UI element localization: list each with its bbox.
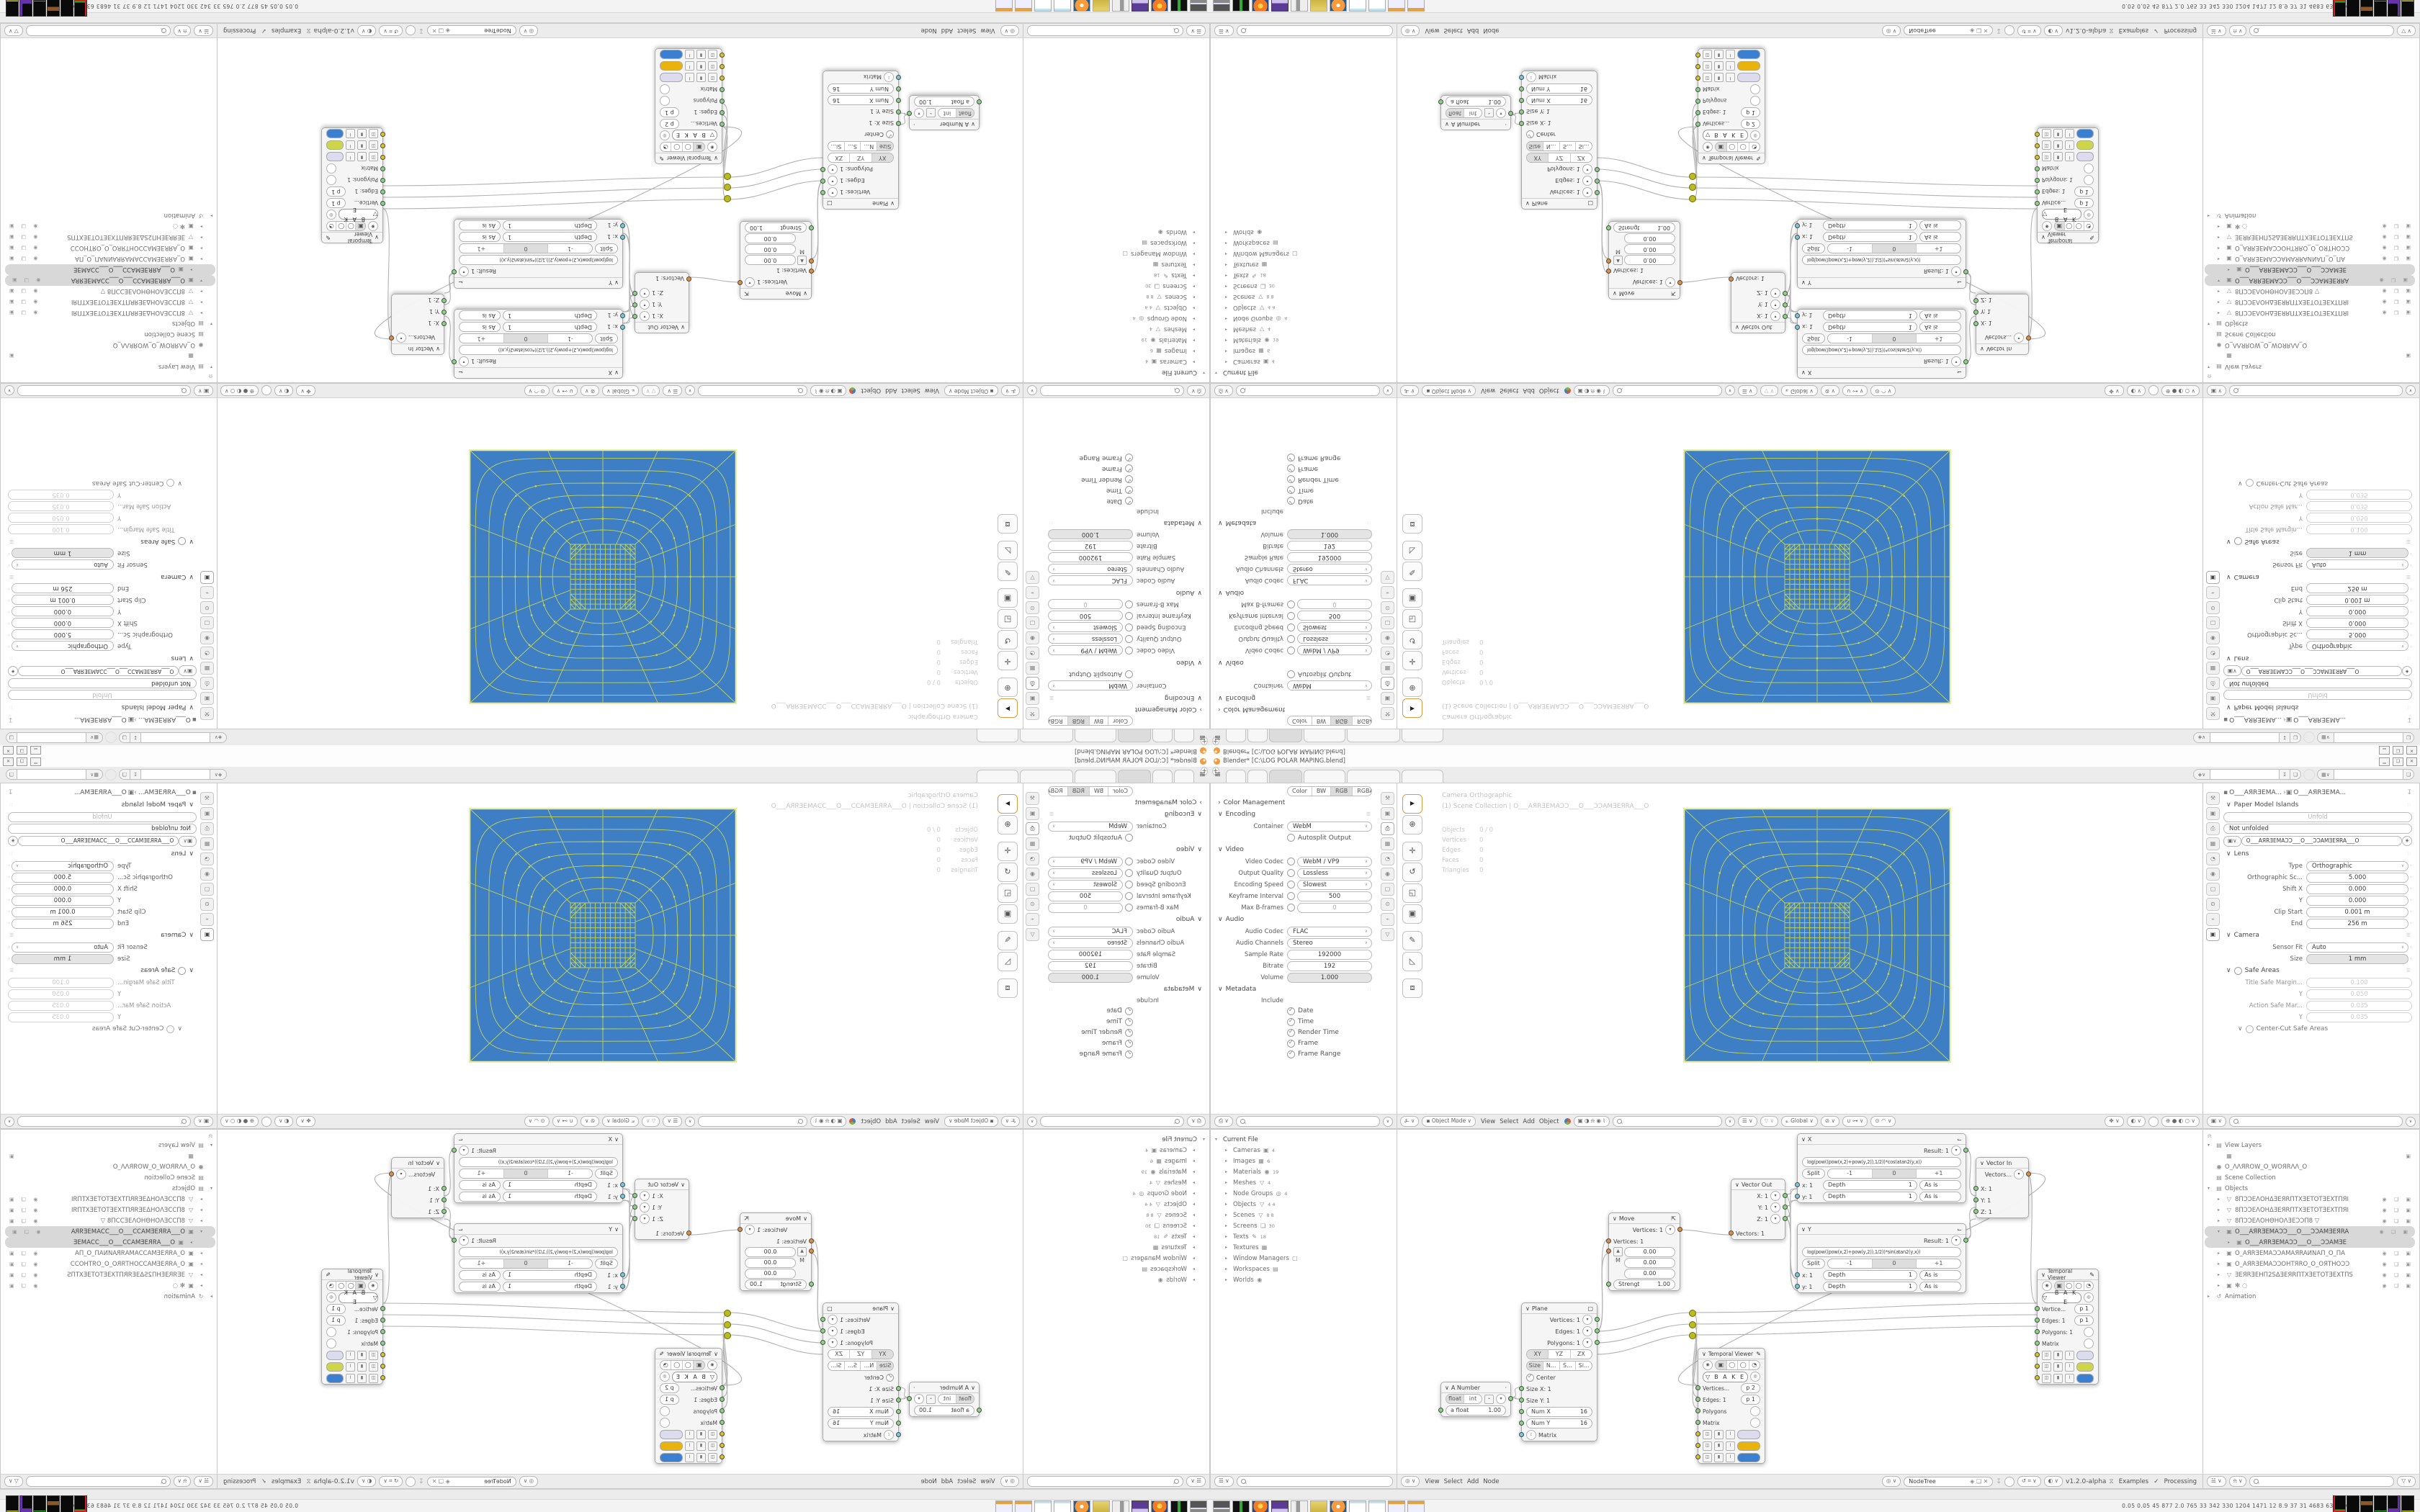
row-checkbox[interactable]	[1125, 881, 1133, 888]
row-value[interactable]: 0.000	[2306, 884, 2408, 894]
file-category-row[interactable]: ▸ Materials ◉ 19	[1025, 335, 1208, 346]
file-category-row[interactable]: ▸ Worlds ◉	[1025, 227, 1208, 238]
vector-component[interactable]: 0.00	[1624, 255, 1675, 265]
autosplit-checkbox[interactable]	[1125, 834, 1133, 842]
object-picker-icon[interactable]: ◈∨	[210, 769, 227, 780]
id-input-b[interactable]	[17, 732, 86, 743]
window-thumbnail[interactable]	[2388, 1495, 2401, 1512]
safe-areas-checkbox[interactable]	[178, 538, 186, 546]
breadcrumb-object[interactable]: O___AЯRƎEMA...	[2228, 716, 2283, 723]
outliner-row[interactable]: ▤ Scene Collection	[2205, 1172, 2418, 1183]
row-value[interactable]: 256 m	[2306, 919, 2408, 929]
tab-constraints-icon[interactable]: ⌁	[1026, 913, 1039, 926]
file-category-row[interactable]: ▸ Materials ◉ 19	[1212, 335, 1395, 346]
notepad[interactable]	[1349, 0, 1366, 12]
orientation-select[interactable]: ⟀ Global ∨	[1781, 1116, 1818, 1127]
file-category-row[interactable]: ▸ Texts ✎ 18	[1212, 270, 1395, 281]
editor-type-button[interactable]: ⎙ ∨	[1214, 385, 1233, 396]
search-input[interactable]	[1237, 25, 1393, 36]
split-button[interactable]: Split	[595, 1259, 618, 1269]
color-mode-option[interactable]: Color	[1288, 787, 1312, 796]
row-value[interactable]: Orthographic	[12, 642, 114, 652]
outliner-row[interactable]: ▸ ▽ 8ПƆƆEΛOHΔƎEЯRПTXƎETOTƎEXTПЯI ◉ ❏ ▣	[2, 1205, 215, 1215]
split-option[interactable]: 0	[1873, 1259, 1917, 1268]
fake-user-shield-icon[interactable]: ◈	[8, 666, 18, 676]
options-dropdown[interactable]: ∨	[1027, 386, 1037, 396]
formula-field[interactable]: log(pow((pow(x,2)+pow(y,2)),1/2))*sin(at…	[1802, 255, 1961, 265]
vector-component[interactable]: 0.00	[745, 244, 796, 254]
tab[interactable]	[1402, 729, 1443, 742]
file-category-row[interactable]: ▸ Objects ▽ 4 4	[1025, 302, 1208, 313]
orientation-select[interactable]: ⟀ Global ∨	[602, 1116, 639, 1127]
select-tool[interactable]: ▶	[1402, 698, 1422, 718]
rotate-tool[interactable]: ↺	[998, 863, 1018, 882]
calculator[interactable]	[1388, 1500, 1405, 1512]
bake-button[interactable]: ▽B A K E	[2042, 210, 2081, 220]
panel-video[interactable]: ∨Video	[1045, 657, 1205, 668]
row-value[interactable]: 500	[1297, 891, 1372, 901]
color-swatch[interactable]	[2076, 141, 2094, 150]
object-visibility-toggles[interactable]: ▣ ◑ ⍾ ◉ ⌇	[1574, 385, 1610, 396]
color-swatch[interactable]	[1737, 50, 1760, 60]
node-temporal-viewer-2[interactable]: ∨Temporal Viewer✎ ◉ ▣◯◯◔ ▽B A K E◎ Verti…	[655, 48, 722, 164]
menu-item[interactable]: Add	[939, 27, 955, 35]
color-mode-option[interactable]: RGBA	[1048, 717, 1067, 726]
split-button[interactable]: Split	[595, 243, 618, 253]
color-mode-option[interactable]: BW	[1089, 787, 1108, 796]
row-value[interactable]: 192000	[1287, 553, 1372, 563]
row-checkbox[interactable]	[1287, 869, 1295, 877]
metadata-checkbox[interactable]	[1125, 476, 1133, 484]
row-value[interactable]: 0.035	[2306, 1001, 2412, 1011]
split-option[interactable]: 0	[503, 334, 548, 343]
close-button[interactable]: ✕	[2406, 757, 2417, 766]
monitor[interactable]	[1190, 0, 1207, 12]
file-category-row[interactable]: ▸ Workspaces ▤	[1025, 238, 1208, 248]
color-mode-option[interactable]: RGBA	[1353, 717, 1372, 726]
panel-safe-areas[interactable]: ∨ Safe Areas☰	[5, 965, 197, 976]
search-input[interactable]	[2229, 385, 2403, 396]
editor-type-button[interactable]: ◎ ∨	[1401, 1476, 1420, 1487]
file-category-row[interactable]: ▸ Worlds ◉	[1212, 1274, 1395, 1285]
panel-audio[interactable]: ∨Audio	[1215, 587, 1375, 598]
xray-toggle[interactable]	[2148, 386, 2159, 396]
copy-icon[interactable]: ❏	[119, 769, 130, 780]
safe-areas-checkbox[interactable]	[2234, 967, 2242, 975]
tab[interactable]	[1226, 729, 1246, 742]
camera-data-name[interactable]: O___AЯRƎEMAƆƆ___O___ƆƆAMƎEЯRA___O	[18, 666, 179, 676]
search-input[interactable]	[1236, 1116, 1380, 1127]
tab-tool-icon[interactable]: ⚒	[1026, 707, 1039, 720]
panel-audio[interactable]: ∨Audio	[1045, 914, 1205, 925]
tab-viewlayer-icon[interactable]: ▦	[1026, 837, 1039, 850]
tab-output-icon[interactable]: ⎙	[1381, 677, 1394, 690]
window-thumbnail[interactable]	[47, 1495, 60, 1512]
viewport-3d[interactable]: ▶ ⊕ ✛ ↺ ◱ ▣ ✎ ◺ ⧈ Camera Orthographic (1…	[1397, 783, 2203, 1129]
file-category-row[interactable]: ▸ Images ▦ 6	[1212, 346, 1395, 356]
number-type-option[interactable]: int	[1464, 1395, 1482, 1403]
tab-physics-icon[interactable]: ⊙	[1381, 898, 1394, 911]
camera-data-name[interactable]: O___AЯRƎEMAƆƆ___O___ƆƆAMƎEЯRA___O	[2241, 836, 2402, 846]
menu-icon[interactable]: ≡	[1199, 770, 1206, 779]
window-thumbnail[interactable]	[2374, 1495, 2387, 1512]
pivot-select[interactable]: ⊘ ∨	[581, 1116, 599, 1127]
menu-item[interactable]: Object	[859, 387, 883, 395]
number-type-option[interactable]: int	[938, 109, 956, 117]
window-thumbnail[interactable]	[2401, 0, 2414, 17]
vector-component[interactable]: 0.00	[1624, 1247, 1675, 1257]
menu-item[interactable]: Object	[1537, 387, 1561, 395]
outliner-row[interactable]: ▦ ▣	[2205, 351, 2418, 361]
file-root-row[interactable]: ▾ Current File	[1212, 367, 1395, 378]
row-value[interactable]: 256 m	[2306, 584, 2408, 594]
panel-encoding[interactable]: ∨Encoding ☰	[1045, 809, 1205, 820]
node-plane[interactable]: ∨Plane▢ Vertices: 1▾Edges: 1▾Polygons: 1…	[823, 71, 899, 210]
formula-field[interactable]: log(pow((pow(x,2)+pow(y,2)),1/2))*sin(at…	[459, 255, 618, 265]
tab-tool-icon[interactable]: ⚒	[2206, 707, 2220, 720]
row-value[interactable]: Auto	[12, 942, 114, 953]
split-button[interactable]: Split	[1802, 1169, 1825, 1179]
tab-tool-icon[interactable]: ⚒	[1026, 792, 1039, 805]
file-category-row[interactable]: ▸ Objects ▽ 4 4	[1212, 302, 1395, 313]
menu-icon[interactable]: ≡	[1214, 770, 1221, 779]
tab-physics-icon[interactable]: ⊙	[1026, 601, 1039, 614]
move-tool[interactable]: ✛	[1402, 842, 1422, 861]
proportional-edit-toggle[interactable]: ⊙ ◠ ∨	[524, 385, 550, 396]
calculator[interactable]	[1015, 0, 1032, 12]
node-move[interactable]: ∨Move⇱ Vertices: 1▾ Vertices: 1 ▲ M 0.00…	[740, 221, 812, 300]
tab-constraints-icon[interactable]: ⌁	[2206, 586, 2220, 599]
file-category-row[interactable]: ▸ Cameras ▣ 4	[1212, 356, 1395, 367]
editor-type-button[interactable]: ▣ ∨	[194, 385, 213, 396]
unfold-button[interactable]: Unfold	[8, 812, 197, 822]
id-selector-b[interactable]: ▦∨ ❏	[2317, 732, 2414, 743]
row-checkbox[interactable]	[1287, 647, 1295, 654]
color-swatch[interactable]	[326, 130, 344, 139]
search-input[interactable]	[17, 1116, 191, 1127]
row-checkbox[interactable]	[1287, 881, 1295, 888]
tree-type-button[interactable]: ◎ ∨	[519, 1476, 538, 1487]
tab-render-icon[interactable]: ▣	[1026, 692, 1039, 705]
row-value[interactable]: 0.000	[12, 896, 114, 906]
metadata-checkbox[interactable]	[1125, 454, 1133, 462]
node-temporal-viewer-2[interactable]: ∨Temporal Viewer✎ ◉ ▣◯◯◔ ▽B A K E◎ Verti…	[1698, 1348, 1765, 1464]
tab-world-icon[interactable]: ◉	[2206, 631, 2220, 644]
gizmo-toggle[interactable]: ✥ ∨	[296, 1116, 315, 1127]
split-option[interactable]: -1	[1828, 1259, 1873, 1268]
window-thumbnail[interactable]	[33, 1495, 46, 1512]
monitor[interactable]	[1190, 1500, 1207, 1512]
row-value[interactable]: Orthographic	[12, 861, 114, 871]
plane-axis-option[interactable]: YZ	[1549, 1350, 1570, 1359]
tab-render-icon[interactable]: ▣	[2206, 692, 2220, 705]
outliner-row[interactable]: ◉ O_ΛΛЯROW_O_WOЯRΛΛ_O	[2205, 1161, 2418, 1172]
vector-component[interactable]: 0.00	[745, 1258, 796, 1268]
tab-world-icon[interactable]: ◉	[1381, 868, 1394, 881]
tab[interactable]	[1174, 729, 1194, 742]
row-value[interactable]: WebM / VP9	[1297, 646, 1372, 656]
breadcrumb-data[interactable]: O___AЯRƎEMA...	[2292, 789, 2347, 796]
xray-toggle[interactable]	[2148, 1117, 2159, 1127]
row-value[interactable]: Slowest	[1048, 623, 1123, 633]
ghost-toggle[interactable]	[2004, 26, 2015, 36]
outliner-row[interactable]: ▸ ▣ O_AЯRƎEMAƆƆAMAЯRAИNAП_O_ПA ◉ ❏ ▣	[2205, 253, 2418, 264]
outliner-row[interactable]: ▸ ▽ 8ПƆƆEΛOHΔƎEЯRПTXƎETOTƎEXTПЯI ◉ ❏ ▣	[2205, 307, 2418, 318]
center-checkbox[interactable]	[886, 131, 894, 139]
file-category-row[interactable]: ▸ Screens ❏ 30	[1025, 281, 1208, 292]
window-thumbnail[interactable]	[2333, 1495, 2346, 1512]
plane-size-option[interactable]: Size	[877, 1362, 893, 1370]
notepad[interactable]	[1368, 0, 1386, 12]
pin-icon[interactable]: ↧	[1996, 27, 2002, 35]
plane-axis-option[interactable]: XY	[871, 153, 893, 162]
panel-paper-model[interactable]: ∨Paper Model Islands ∷	[2223, 799, 2415, 811]
tab-object-icon[interactable]: ▢	[200, 883, 214, 896]
plane-axis-option[interactable]: XY	[1527, 1350, 1549, 1359]
editor-type-button[interactable]: ▣ ∨	[2207, 385, 2226, 396]
row-checkbox[interactable]	[1287, 858, 1295, 865]
annotate-tool[interactable]: ✎	[1402, 562, 1422, 581]
row-value[interactable]: 192000	[1287, 950, 1372, 960]
color-mode-option[interactable]: BW	[1312, 787, 1331, 796]
outliner-row[interactable]: ▸ ▽ ƎEЯRƎEHП2SΔƎEЯRПTXƎETOTƎEXTПS ◉ ❏ ▣	[2, 1269, 215, 1280]
file-category-row[interactable]: ▸ Cameras ▣ 4	[1025, 356, 1208, 367]
window-thumbnail[interactable]	[2347, 0, 2359, 17]
bake-button[interactable]: ▽B A K E	[339, 210, 378, 220]
viewport-3d[interactable]: ▶ ⊕ ✛ ↺ ◱ ▣ ✎ ◺ ⧈ Camera Orthographic (1…	[217, 783, 1023, 1129]
panel-paper-model[interactable]: ∨Paper Model Islands ∷	[5, 799, 197, 811]
row-value[interactable]: 1.000	[1048, 530, 1133, 540]
search-input[interactable]	[1236, 385, 1380, 396]
window-thumbnail[interactable]	[19, 0, 32, 17]
node-vector-in[interactable]: ∨Vector In Vectors...▾ X: 1Y: 1Z: 1	[1976, 1157, 2029, 1218]
file-category-row[interactable]: ▸ Worlds ◉	[1212, 227, 1395, 238]
shading-modes[interactable]: ⊕ ● ◐ ○ ∨	[220, 1116, 259, 1127]
panel-video[interactable]: ∨Video	[1215, 844, 1375, 855]
tab-data-icon[interactable]: ▽	[1026, 571, 1039, 584]
panel-encoding[interactable]: ∨Encoding ☰	[1215, 809, 1375, 820]
copy-icon[interactable]: ❏	[2290, 769, 2301, 780]
plane-axis-option[interactable]: XY	[871, 1350, 893, 1359]
color-mode-option[interactable]: RGBA	[1048, 787, 1067, 796]
fake-user-shield-icon[interactable]: ◈	[8, 836, 18, 846]
row-value[interactable]: Slowest	[1297, 623, 1372, 633]
row-value[interactable]: 0.000	[2306, 896, 2408, 906]
overlay-group[interactable]: ◐ ∨	[357, 1476, 376, 1487]
row-value[interactable]: 0.000	[12, 607, 114, 617]
id-selector-a[interactable]: ◈∨ ↧ ❏	[119, 732, 227, 743]
node-editor[interactable]: ∨A Number· floatint ⌁▾ a float1.00 ∨Plan…	[1397, 1129, 2203, 1489]
outliner-row[interactable]: ▦ ▣	[2, 1151, 215, 1161]
file-root-row[interactable]: ▾ Current File	[1212, 1134, 1395, 1145]
node-expression-x[interactable]: ∨X⌙ Result: 1▾ log(pow((pow(x,2)+pow(y,2…	[1797, 1133, 1966, 1203]
node-temporal-viewer-1[interactable]: ∨Temporal Viewer✎ ◉ ▣◯◯◔ ▽B A K E◎ Verti…	[2037, 127, 2099, 243]
search-dropdown[interactable]: ∨	[1725, 1117, 1735, 1127]
metadata-checkbox[interactable]	[1125, 1029, 1133, 1037]
minimize-button[interactable]: ▁	[2379, 757, 2390, 766]
plane-axis-option[interactable]: YZ	[1549, 153, 1570, 162]
plane-size-option[interactable]: S...	[844, 1362, 861, 1370]
window-thumbnail[interactable]	[60, 1495, 73, 1512]
outliner-row[interactable]: ▸ ▽ 8ПƆƆEΛOHΔƎEЯRПTXƎETOTƎEXTПЯI ◉ ❏ ▣	[2, 307, 215, 318]
row-value[interactable]: 0	[1297, 903, 1372, 913]
pin-icon[interactable]: ↧	[8, 716, 14, 723]
window-thumbnail[interactable]	[2333, 0, 2346, 17]
outliner-row[interactable]: ▾ ▣ O___AЯRƎEMAƆƆ___O___ƆƆAMƎEЯRA ◉ ❏ ▣	[5, 1226, 215, 1237]
split-option[interactable]: +1	[460, 1259, 503, 1268]
file-category-row[interactable]: ▸ Textures ▦	[1025, 259, 1208, 270]
outliner-row[interactable]: ▸ ▣ ✻ ◌ ◉ ❏ ▣	[2, 1280, 215, 1291]
row-value[interactable]: 256 m	[12, 919, 114, 929]
maximize-button[interactable]: ❏	[17, 746, 27, 755]
plane-size-option[interactable]: N...	[1543, 142, 1560, 150]
color-mode-option[interactable]: BW	[1089, 717, 1108, 726]
image-picker-icon[interactable]: ▦∨	[2317, 769, 2334, 780]
plane-size-option[interactable]: S...	[1560, 1362, 1577, 1370]
panel-metadata[interactable]: ∨Metadata ∷	[1215, 984, 1375, 995]
color-swatch[interactable]	[2076, 1362, 2094, 1372]
autosplit-checkbox[interactable]	[1287, 670, 1295, 678]
file-category-row[interactable]: ▸ Node Groups ◎ 4	[1212, 313, 1395, 324]
window-thumbnail[interactable]	[19, 1495, 32, 1512]
maximize-button[interactable]: ❏	[17, 757, 27, 766]
options-dropdown[interactable]: ∨	[4, 386, 14, 396]
row-value[interactable]: Lossless	[1048, 634, 1123, 644]
panel-lens[interactable]: ∨Lens ∷	[2223, 652, 2415, 664]
add-cube-tool[interactable]: ⧈	[1402, 978, 1422, 998]
select-tool[interactable]: ▶	[998, 698, 1018, 718]
firefox[interactable]	[1252, 1500, 1269, 1512]
tab-constraints-icon[interactable]: ⌁	[1381, 586, 1394, 599]
outliner-row[interactable]: ▾ ▣ O___AЯRƎEMAƆƆ___O___ƆƆAMƎEЯRA ◉ ❏ ▣	[2205, 275, 2415, 286]
split-option[interactable]: -1	[548, 1259, 593, 1268]
color-swatch[interactable]	[326, 1351, 344, 1360]
folder[interactable]	[1310, 1500, 1327, 1512]
pin-icon[interactable]: ↧	[8, 789, 14, 796]
window-thumbnail[interactable]	[2360, 0, 2373, 17]
row-value[interactable]: 0.050	[8, 989, 114, 999]
move-tool[interactable]: ✛	[1402, 651, 1422, 670]
window-thumbnail[interactable]	[47, 0, 60, 17]
tab-tool-icon[interactable]: ⚒	[200, 792, 214, 805]
display-mode-button[interactable]: ☰ ∨	[1186, 25, 1206, 36]
number-type-option[interactable]: float	[1446, 109, 1464, 117]
camera-data-name[interactable]: O___AЯRƎEMAƆƆ___O___ƆƆAMƎEЯRA___O	[18, 836, 179, 846]
examples-menu[interactable]: Examples	[269, 1478, 303, 1485]
row-value[interactable]: Slowest	[1297, 880, 1372, 890]
color-swatch[interactable]	[2076, 130, 2094, 139]
tab-object-icon[interactable]: ▢	[1381, 883, 1394, 896]
outliner-row[interactable]: ▸ ▣ ✻ ◌ ◉ ❏ ▣	[2205, 221, 2418, 232]
options-dropdown[interactable]: ∨	[2406, 386, 2416, 396]
file-category-row[interactable]: ▸ Scenes ▽ 8 8	[1025, 1210, 1208, 1220]
tab[interactable]	[977, 770, 1018, 783]
outliner-row[interactable]: ▸ ▣ O_AЯRƎEMAƆƆOHTЯRO_O_OЯTHOƆƆ ◉ ❏ ▣	[2, 243, 215, 253]
panel-paper-model[interactable]: ∨Paper Model Islands ∷	[2223, 701, 2415, 713]
color-swatch[interactable]	[2076, 1351, 2094, 1360]
formula-field[interactable]: log(pow((pow(x,2)+pow(y,2)),1/2))*sin(at…	[459, 1247, 618, 1257]
mode-select[interactable]: ▪ Object Mode ∨	[1422, 385, 1476, 396]
split-option[interactable]: +1	[1917, 244, 1960, 253]
row-value[interactable]: 192	[1048, 961, 1133, 971]
plane-size-option[interactable]: Size	[1527, 1362, 1543, 1370]
row-value[interactable]: 192	[1287, 541, 1372, 552]
plane-size-option[interactable]: Size	[1527, 142, 1543, 150]
outliner-row[interactable]: ▸ ▽ 8ПƆƆEΛOHΘHOΛƎEƆƆП8 ▽ ◉ ❏ ▣	[2, 1215, 215, 1226]
plane-size-option[interactable]: Si...	[1576, 142, 1592, 150]
shading-modes[interactable]: ⊕ ● ◐ ○ ∨	[2161, 1116, 2200, 1127]
bake-button[interactable]: ▽B A K E	[1703, 1372, 1748, 1382]
file-category-row[interactable]: ▸ Images ▦ 6	[1212, 1156, 1395, 1166]
split-option[interactable]: -1	[548, 1169, 593, 1178]
outliner-row[interactable]: ▸ ↺ Animation	[2, 1291, 215, 1302]
display-mode-button[interactable]: ☰ ∨	[1186, 1476, 1206, 1487]
row-value[interactable]: FLAC	[1048, 927, 1133, 937]
file-category-row[interactable]: ▸ Node Groups ◎ 4	[1025, 313, 1208, 324]
annotate-tool[interactable]: ✎	[998, 562, 1018, 581]
notepad[interactable]	[1034, 1500, 1052, 1512]
xray-toggle[interactable]	[261, 386, 272, 396]
tab[interactable]	[1075, 770, 1116, 783]
vector-component[interactable]: 0.00	[745, 1269, 796, 1279]
ghost-toggle[interactable]	[2004, 1477, 2015, 1487]
tab-tool-icon[interactable]: ⚒	[2206, 792, 2220, 805]
row-value[interactable]: Orthographic	[2306, 642, 2408, 652]
color-swatch[interactable]	[660, 50, 683, 60]
menu-item[interactable]: Select	[1442, 27, 1465, 35]
row-value[interactable]: 0.000	[2306, 607, 2408, 617]
row-checkbox[interactable]	[1125, 600, 1133, 608]
outliner-row[interactable]: ▸ ▣ ✻ ◌ ◉ ❏ ▣	[2205, 1280, 2418, 1291]
editor-type-button[interactable]: ⎙ ∨	[1187, 385, 1206, 396]
file-category-row[interactable]: ▸ Workspaces ▤	[1212, 1264, 1395, 1274]
row-value[interactable]: 0.050	[8, 513, 114, 523]
outliner-row[interactable]: ◉ O_ΛΛЯROW_O_WOЯRΛΛ_O	[2205, 340, 2418, 351]
tab[interactable]	[1269, 770, 1302, 783]
file-category-row[interactable]: ▸ Screens ❏ 30	[1025, 1220, 1208, 1231]
node-move[interactable]: ∨Move⇱ Vertices: 1▾ Vertices: 1 ▲ M 0.00…	[1608, 221, 1680, 300]
tab[interactable]	[1269, 729, 1302, 742]
split-button[interactable]: Split	[1802, 333, 1825, 343]
window-thumbnail[interactable]	[2360, 1495, 2373, 1512]
tab-scene-icon[interactable]: ◔	[2206, 647, 2220, 660]
editor-type-button[interactable]: ⍾ ∨	[2229, 1476, 2247, 1487]
panel-video[interactable]: ∨Video	[1045, 844, 1205, 855]
rotate-tool[interactable]: ↺	[1402, 630, 1422, 649]
autosplit-checkbox[interactable]	[1125, 670, 1133, 678]
mode-select[interactable]: ▪ Object Mode ∨	[944, 1116, 998, 1127]
row-value[interactable]: 500	[1048, 611, 1123, 621]
examples-menu[interactable]: Examples	[269, 27, 303, 35]
row-value[interactable]: Lossless	[1297, 868, 1372, 878]
examples-menu[interactable]: Examples	[2117, 27, 2151, 35]
outliner-row[interactable]: ▤ Scene Collection	[2, 1172, 215, 1183]
tab-scene-icon[interactable]: ◔	[1026, 647, 1039, 660]
row-value[interactable]: WebM / VP9	[1048, 646, 1123, 656]
measure-tool[interactable]: ◺	[1402, 541, 1422, 560]
file-category-row[interactable]: ▸ Scenes ▽ 8 8	[1212, 1210, 1395, 1220]
editor-type-button[interactable]: ▣ ∨	[2207, 1116, 2226, 1127]
display-mode-button[interactable]: ☱ ∨	[194, 1476, 213, 1487]
split-button[interactable]: Split	[1802, 1259, 1825, 1269]
pin-icon[interactable]: ↧	[130, 732, 140, 743]
row-value[interactable]: 5.000	[12, 873, 114, 883]
outliner-row[interactable]: ▸ ▽ 8ПƆƆEΛOHΔƎEЯRПTXƎETOTƎEXTПЯI ◉ ❏ ▣	[2, 1194, 215, 1205]
center-checkbox[interactable]	[1526, 131, 1534, 139]
notepad[interactable]	[1034, 0, 1052, 12]
id-input-a[interactable]	[140, 769, 210, 780]
container-select[interactable]: WebM	[1048, 822, 1133, 832]
